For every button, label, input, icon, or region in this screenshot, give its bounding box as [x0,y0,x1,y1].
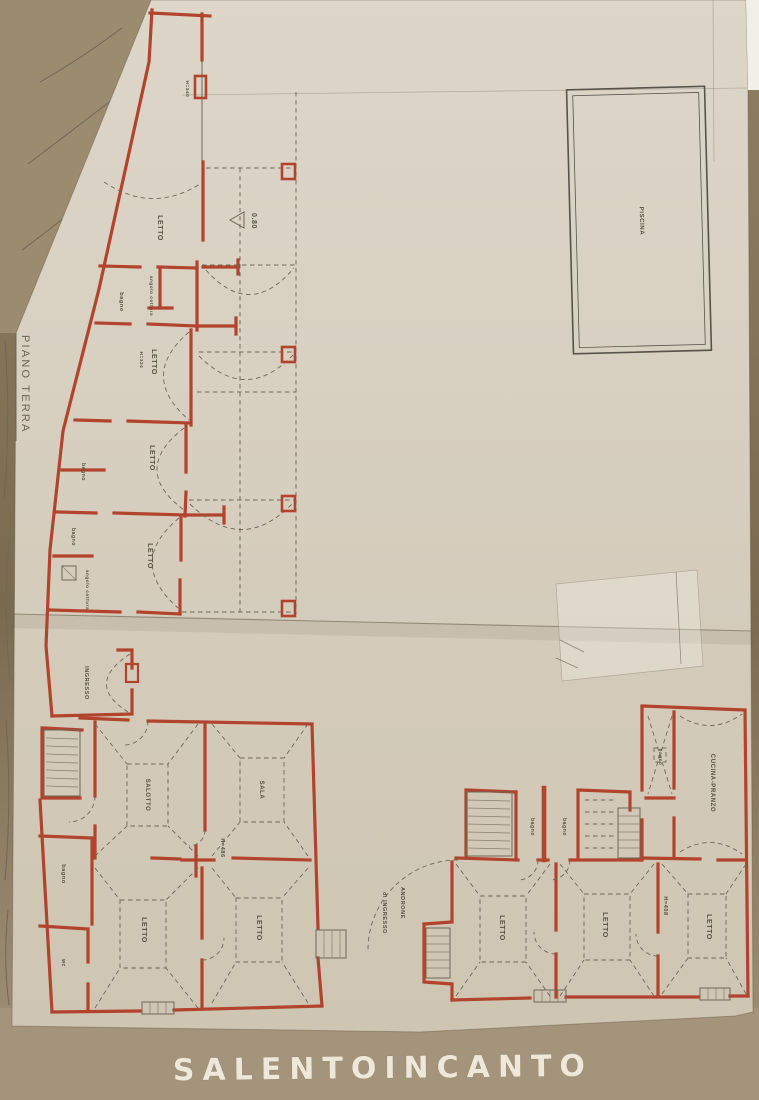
room-label-bagno: bagno [80,463,86,481]
watermark-text: SALENTOINCANTO [173,1049,593,1088]
room-label-letto: LETTO [255,915,262,941]
room-label-letto: LETTO [140,917,147,943]
room-label-letto: LETTO [705,914,712,940]
room-label-wc: wc [60,958,66,967]
page-title: PIANO TERRA [19,335,31,434]
androne-label-line2: di INGRESSO [381,892,387,934]
room-label-angolo-cottura: angolo cottura [149,276,154,316]
room-label-angolo-cottura: angolo cottura [85,570,90,610]
height-label: H=324 [139,352,144,369]
room-label-bagno: bagno [529,818,535,836]
paper-sheet [12,0,759,1032]
androne-label-line1: ANDRONE [399,887,405,919]
room-label-letto: LETTO [150,349,157,375]
room-label-bagno: bagno [60,864,66,884]
room-label-bagno: bagno [118,292,124,312]
floorplan-photo: PIANO TERRA PISCINA [0,0,759,1100]
room-label-ingresso: INGRESSO [83,666,89,700]
tape-patch [556,570,703,681]
room-label-salotto: SALOTTO [144,779,150,812]
room-label-letto: LETTO [498,915,505,941]
room-label-cucina-pranzo: CUCINA-PRANZO [709,754,715,812]
height-label: H=486 [219,838,225,857]
room-label-bagno: bagno [70,528,76,546]
paper [12,0,753,1032]
room-label-letto: LETTO [146,543,153,569]
height-label: H=408 [662,896,668,915]
room-label-bagno: bagno [658,749,663,766]
floorplan-canvas: PIANO TERRA PISCINA [0,0,759,1100]
shower-depth-label: 0.80 [250,213,257,229]
room-label-sala: SALA [258,781,264,800]
room-label-letto: LETTO [148,445,155,471]
room-label-letto: LETTO [601,912,608,938]
paper-under-sliver [746,0,759,90]
tape [556,570,703,681]
room-label-bagno: bagno [561,818,567,836]
room-label-piscina: PISCINA [638,207,645,236]
room-label-letto: LETTO [156,215,163,241]
height-label: H=340 [185,81,190,98]
